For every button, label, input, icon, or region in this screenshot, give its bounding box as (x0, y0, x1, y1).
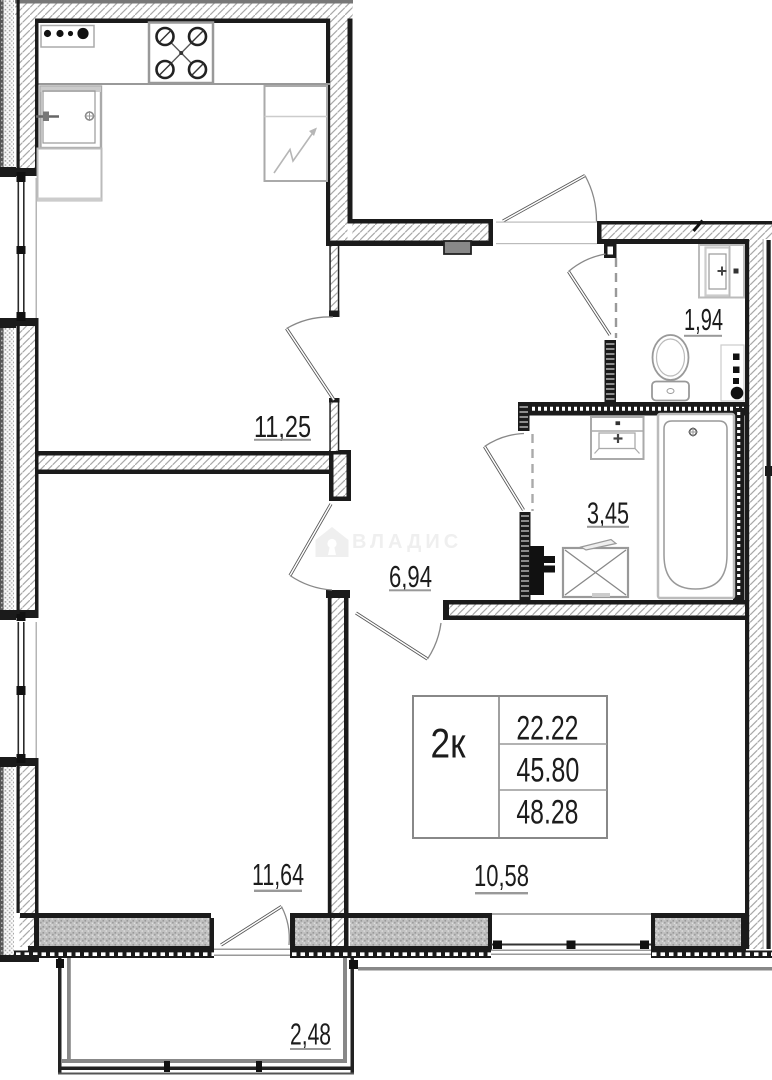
svg-text:1,94: 1,94 (684, 302, 723, 337)
svg-text:11,25: 11,25 (254, 409, 311, 444)
svg-text:ВЛАДИС: ВЛАДИС (352, 531, 462, 553)
svg-text:2,48: 2,48 (290, 1017, 331, 1052)
svg-text:45.80: 45.80 (516, 752, 579, 790)
svg-text:3,45: 3,45 (587, 496, 629, 531)
svg-text:10,58: 10,58 (474, 858, 529, 893)
svg-text:11,64: 11,64 (252, 857, 304, 892)
svg-text:48.28: 48.28 (516, 794, 578, 832)
svg-text:2к: 2к (431, 719, 467, 766)
svg-text:22.22: 22.22 (516, 710, 578, 748)
svg-text:6,94: 6,94 (389, 559, 432, 594)
